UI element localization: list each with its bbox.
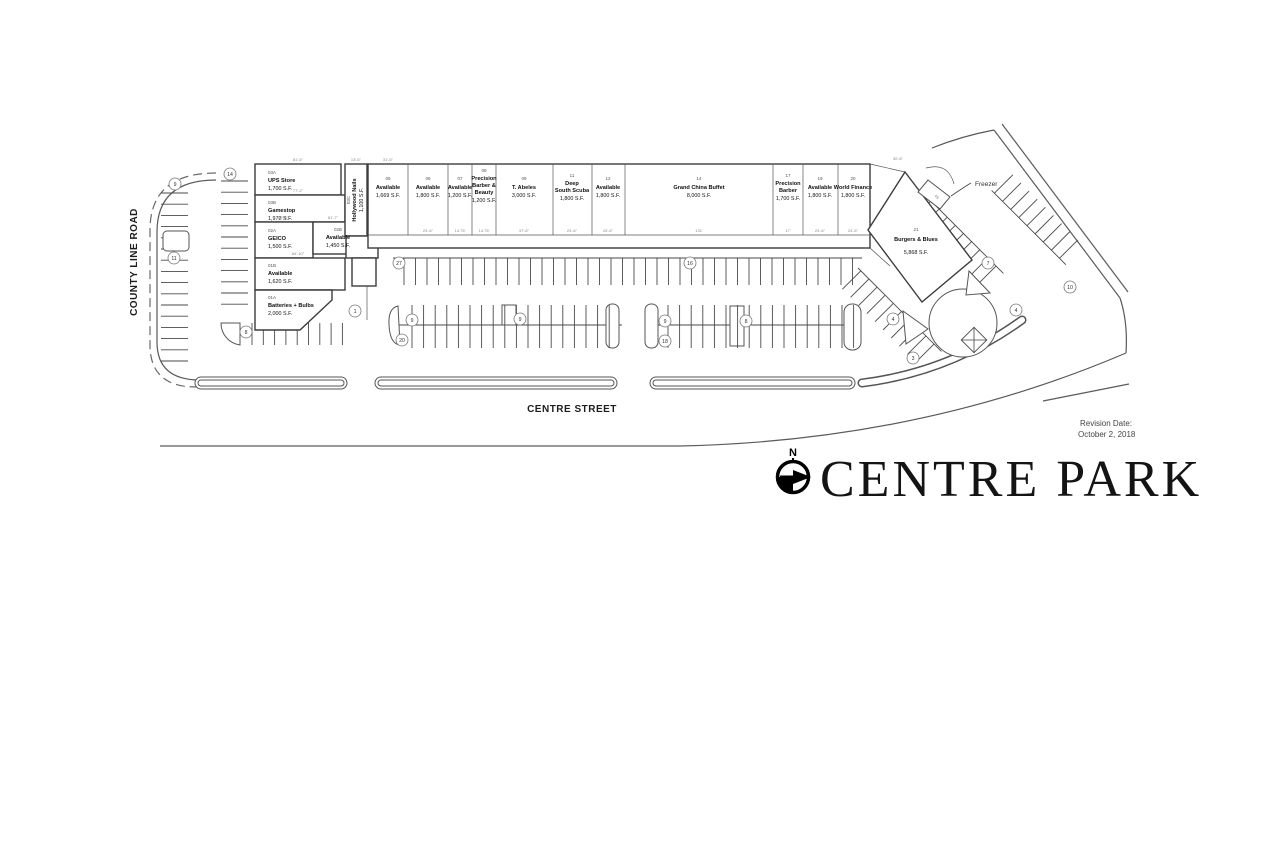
parking-island-notch-2	[730, 306, 744, 346]
dim-label: 24'-6"	[815, 228, 826, 233]
unit-sqft: 2,000 S.F.	[268, 311, 292, 317]
unit-number: 19	[817, 176, 823, 181]
dim-label: 14.75'	[479, 228, 490, 233]
unit-sqft: 1,500 S.F.	[268, 244, 292, 250]
unit-name: Available	[448, 185, 472, 191]
parking-count: 10	[1067, 285, 1073, 291]
parking-count: 20	[399, 338, 405, 344]
unit-sqft: 1,620 S.F.	[268, 279, 292, 285]
parking-count: 8	[745, 319, 748, 325]
unit-name: Gamestop	[268, 208, 296, 214]
parking-count: 9	[664, 319, 667, 325]
unit-number: 17	[785, 173, 791, 178]
parking-island-quarter	[221, 323, 240, 345]
dim-label: 24'-6"	[423, 228, 434, 233]
unit-name: T. Abeles	[512, 185, 536, 191]
parking-badge: 18	[659, 335, 671, 347]
unit-name: Deep	[565, 181, 579, 187]
parking-badge: 9	[169, 178, 181, 190]
dim-label: 81'-6"	[293, 157, 304, 162]
parking-count: 9	[174, 182, 177, 188]
unit-number: 01A	[268, 295, 276, 300]
dim-label: 37'-6"	[519, 228, 530, 233]
parking-badge: 11	[168, 252, 180, 264]
unit-sqft: 1,800 S.F.	[596, 193, 620, 199]
parking-badge: 14	[224, 168, 236, 180]
unit-sqft: 1,700 S.F.	[268, 186, 292, 192]
freezer-label: Freezer	[975, 181, 998, 188]
dim-label: 31'-6"	[383, 157, 394, 162]
strip-pad-connector	[870, 164, 905, 172]
parking-badge: 9	[406, 314, 418, 326]
unit-number: 14	[696, 176, 702, 181]
north-letter: N	[789, 447, 797, 459]
strip-outline	[368, 164, 870, 248]
unit-sqft: 1,800 S.F.	[841, 193, 865, 199]
strip-building: 05 Available 1,669 S.F. 06 Available 1,8…	[368, 164, 905, 266]
building-step	[352, 258, 376, 286]
parking-badge: 16	[684, 257, 696, 269]
unit-number: 03A	[268, 170, 276, 175]
median-east-inner	[653, 380, 852, 386]
parking-badge: 7	[982, 257, 994, 269]
parking-island-notch	[502, 305, 516, 325]
unit-name: UPS Store	[268, 178, 295, 184]
unit-number: 20	[850, 176, 856, 181]
parking-count: 3	[912, 356, 915, 362]
parking-badge: 8	[240, 326, 252, 338]
unit-number: 05	[385, 176, 391, 181]
parking-count: 11	[171, 256, 176, 262]
revision-label: Revision Date:	[1080, 419, 1132, 428]
site-plan: 03A UPS Store 1,700 S.F. 03B Gamestop 1,…	[0, 0, 1280, 853]
parking-row-left-inner	[221, 181, 248, 304]
unit-number: 09	[521, 176, 527, 181]
parking-count: 8	[245, 330, 248, 336]
dim-label: 14.75'	[455, 228, 466, 233]
unit-sqft: 1,800 S.F.	[560, 196, 584, 202]
parking-count: 16	[687, 261, 693, 267]
dim-label: 24'-6"	[603, 228, 614, 233]
unit-sqft: 1,700 S.F.	[776, 196, 800, 202]
unit-name: Available	[416, 185, 440, 191]
parking-island-west-lot	[163, 231, 189, 251]
unit-number: 21	[913, 227, 919, 232]
northeast-road-east-edge	[1002, 124, 1128, 292]
unit-number: 07	[457, 176, 463, 181]
parking-row-middle-west	[389, 304, 622, 348]
unit-name: Beauty	[475, 190, 495, 196]
dim-label: 17'	[785, 228, 790, 233]
parking-count: 9	[519, 317, 522, 323]
unit-sqft: 8,000 S.F.	[687, 193, 711, 199]
page-title: CENTRE PARK	[820, 451, 1202, 508]
unit-number: 03B	[268, 200, 276, 205]
unit-sqft: 1,100 S.F.	[359, 188, 365, 212]
unit-number: 02A	[268, 228, 276, 233]
parking-island-cap-east-2	[844, 304, 861, 350]
traffic-island-west	[903, 311, 928, 344]
street-label-county-line-road: COUNTY LINE ROAD	[129, 208, 140, 316]
parking-count: 18	[662, 339, 668, 345]
parking-island-cap-east	[606, 304, 619, 348]
dim-label: 131'	[695, 228, 703, 233]
west-building: 03A UPS Store 1,700 S.F. 03B Gamestop 1,…	[255, 164, 378, 330]
unit-sqft: 1,800 S.F.	[416, 193, 440, 199]
dim-label: 24'-6"	[848, 228, 859, 233]
dim-label: 84'-10"	[292, 251, 305, 256]
county-line-road-outer-edge	[150, 173, 216, 387]
unit-name: Batteries + Bulbs	[268, 303, 314, 309]
unit-sqft: 3,000 S.F.	[512, 193, 536, 199]
unit-sqft: 1,800 S.F.	[808, 193, 832, 199]
parking-row-left-outer	[161, 193, 188, 361]
unit-name: Available	[596, 185, 620, 191]
centre-street-branch-edge	[1043, 384, 1129, 401]
parking-badge: 1	[349, 305, 361, 317]
parking-count: 1	[354, 309, 357, 315]
unit-name: Available	[268, 271, 292, 277]
unit-name: Grand China Buffet	[673, 185, 724, 191]
parking-count: 4	[892, 317, 895, 323]
parking-badge: 27	[393, 257, 405, 269]
unit-sqft: 1,200 S.F.	[472, 198, 496, 204]
parking-row-diagonal-boundary	[992, 172, 1085, 265]
unit-name: Barber	[779, 188, 798, 194]
unit-number: 06	[425, 176, 431, 181]
dim-label: 30'-6"	[893, 156, 904, 161]
unit-sqft: 1,450 S.F.	[326, 243, 350, 249]
unit-number: 08	[481, 168, 487, 173]
north-boundary-curve	[932, 130, 994, 148]
parking-badge: 3	[907, 352, 919, 364]
parking-badge: 9	[514, 313, 526, 325]
unit-number: 11	[570, 173, 575, 178]
unit-number: 03C	[346, 195, 351, 204]
unit-number: 01B	[268, 263, 276, 268]
unit-name: Hollywood Nails	[352, 178, 358, 221]
parking-count: 9	[411, 318, 414, 324]
parking-count: 4	[1015, 308, 1018, 314]
revision-date: October 2, 2018	[1078, 430, 1136, 439]
dim-label: 77'-2"	[293, 188, 304, 193]
unit-name: Barber &	[472, 183, 496, 189]
parking-count: 7	[987, 261, 990, 267]
unit-number: 02B	[334, 227, 342, 232]
parking-badge: 4	[887, 313, 899, 325]
street-label-centre-street: CENTRE STREET	[527, 404, 617, 415]
unit-name: Available	[376, 185, 400, 191]
parking-badge: 9	[659, 315, 671, 327]
parking-badge: 10	[1064, 281, 1076, 293]
parking-row-front	[393, 258, 862, 285]
traffic-island-north	[966, 271, 990, 295]
freezer-leader-line	[951, 183, 971, 196]
parking-badge: 20	[396, 334, 408, 346]
north-arrow-icon: N	[778, 447, 812, 493]
unit-number: 12	[605, 176, 611, 181]
dim-label: 24'-6"	[567, 228, 578, 233]
unit-name: South Scuba	[555, 188, 590, 194]
unit-sqft: 5,868 S.F.	[904, 250, 928, 256]
dim-label: 13'-6"	[351, 157, 362, 162]
parking-count: 14	[227, 172, 233, 178]
parking-island-cap-west	[645, 304, 658, 348]
unit-sqft: 1,200 S.F.	[448, 193, 472, 199]
median-center-inner	[378, 380, 614, 386]
unit-name: Precision	[775, 181, 801, 187]
unit-name: Precision	[471, 176, 497, 182]
roundabout-circle	[929, 289, 997, 357]
parking-badge: 8	[740, 315, 752, 327]
unit-name: World Finance	[834, 185, 872, 191]
unit-sqft: 1,669 S.F.	[376, 193, 400, 199]
unit-01a-batteries-bulbs	[255, 290, 332, 330]
parking-count: 27	[396, 261, 402, 267]
parking-badge: 4	[1010, 304, 1022, 316]
dim-label: 81'-7"	[328, 215, 339, 220]
unit-name: GEICO	[268, 236, 287, 242]
median-west-inner	[198, 380, 344, 386]
unit-name: Available	[808, 185, 832, 191]
parking-row-middle-east	[645, 304, 861, 350]
unit-name: Burgers & Blues	[894, 237, 938, 243]
dim-label: 60'-6"	[278, 215, 289, 220]
centre-street-south-edge	[160, 353, 1126, 446]
unit-name: Available	[326, 235, 350, 241]
